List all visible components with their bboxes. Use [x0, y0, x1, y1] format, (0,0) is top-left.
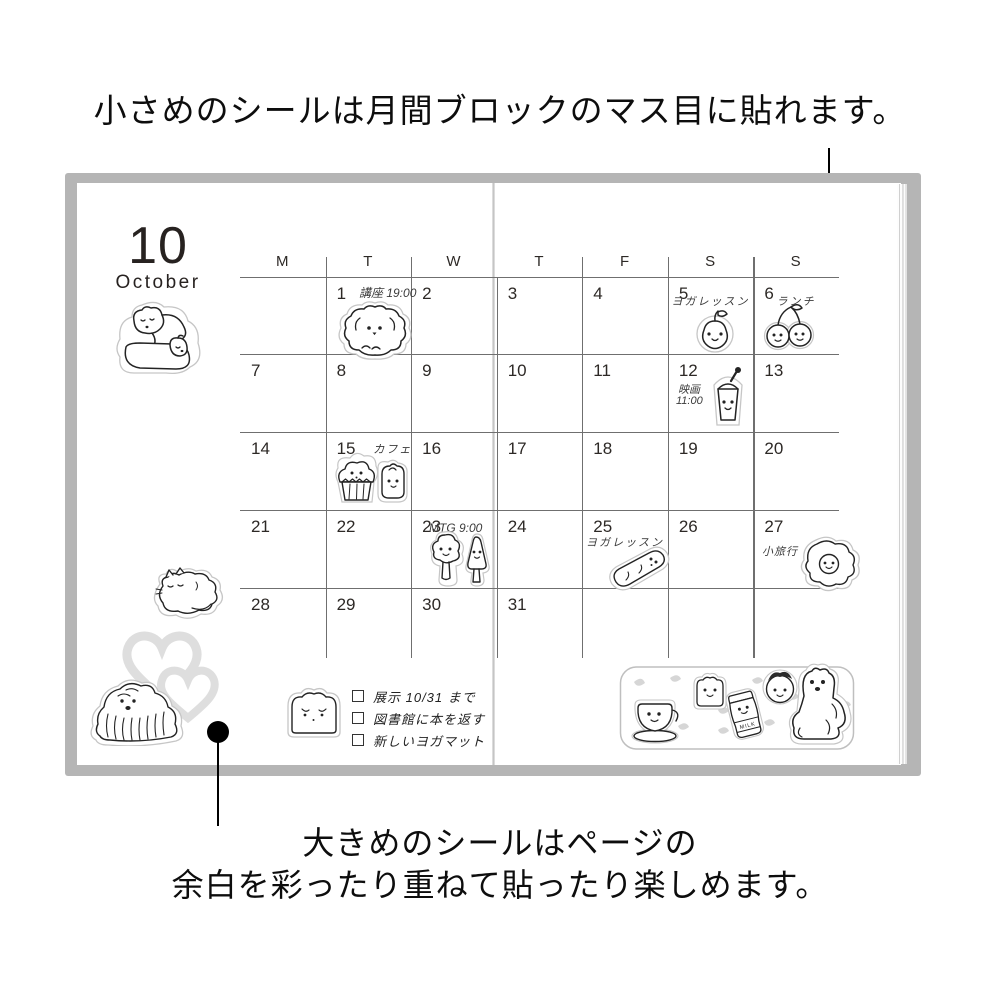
movie-drink-cup-sticker — [704, 364, 752, 428]
weekday-label: T — [497, 253, 583, 270]
day-cell: 19 — [668, 432, 754, 510]
day-cell: 29 — [326, 588, 412, 658]
two-trees-sticker — [424, 528, 494, 590]
day-cell — [240, 277, 326, 354]
checklist: 展示 10/31 まで 図書館に本を返す 新しいヨガマット — [352, 685, 485, 751]
day-cell: 17 — [497, 432, 583, 510]
checklist-item: 新しいヨガマット — [352, 729, 485, 751]
week-row: 28 29 30 31 — [240, 588, 839, 658]
day-cell: 8 — [326, 354, 412, 432]
apple-art — [703, 311, 728, 349]
day-cell: 26 — [668, 510, 754, 588]
note-oct12-line2: 11:00 — [676, 395, 703, 407]
caption-bottom-line1: 大きめのシールはページの — [0, 818, 1000, 864]
pointer-line-bottom — [217, 741, 220, 826]
checkbox-icon — [352, 690, 364, 702]
checklist-item-label: 展示 10/31 まで — [373, 687, 476, 706]
day-cell: 24 — [497, 510, 583, 588]
cupcake-and-bun-sticker — [330, 448, 412, 506]
weekday-label: W — [411, 253, 497, 270]
day-cell: 4 — [582, 277, 668, 354]
day-cell: 13 — [753, 354, 839, 432]
month-number: 10 — [116, 216, 200, 276]
checklist-item-label: 新しいヨガマット — [373, 731, 485, 750]
sticker-sheet-strip: MILK — [618, 660, 858, 752]
fried-egg-sticker — [794, 534, 862, 596]
bread-slice-sticker — [280, 682, 348, 740]
apple-sticker — [690, 306, 740, 354]
day-cell: 3 — [497, 277, 583, 354]
shaggy-dog-sticker — [88, 674, 188, 746]
poodle-dog-sticker — [336, 300, 414, 362]
caption-bottom-line2: 余白を彩ったり重ねて貼ったり楽しめます。 — [0, 860, 1000, 906]
week-row: 21 22 23 24 25 26 27 — [240, 510, 839, 588]
day-cell: 22 — [326, 510, 412, 588]
day-cell: 10 — [497, 354, 583, 432]
planner-product-photo: 小さめのシールは月間ブロックのマス目に貼れます。 10 October M T … — [0, 0, 1000, 1000]
day-cell — [582, 588, 668, 658]
bread-slice-art — [292, 693, 336, 733]
month-name: October — [96, 272, 220, 294]
weekday-label: F — [582, 253, 668, 270]
checklist-item: 図書館に本を返す — [352, 707, 485, 729]
day-cell: 2 — [411, 277, 497, 354]
day-cell: 7 — [240, 354, 326, 432]
day-cell: 30 — [411, 588, 497, 658]
weekday-label: S — [668, 253, 754, 270]
caption-top: 小さめのシールは月間ブロックのマス目に貼れます。 — [0, 84, 1000, 132]
weekday-label: S — [753, 253, 839, 270]
strawberry-sticker — [763, 670, 797, 704]
note-oct1: 講座 19:00 — [359, 284, 416, 301]
day-cell: 11 — [582, 354, 668, 432]
polar-bears-sticker — [112, 301, 204, 377]
day-cell: 21 — [240, 510, 326, 588]
lying-bread-sticker — [606, 542, 672, 596]
weekday-label: T — [326, 253, 412, 270]
poodle-art — [345, 306, 406, 355]
day-cell: 16 — [411, 432, 497, 510]
weekday-label: M — [240, 253, 326, 270]
cherries-sticker — [762, 300, 818, 352]
week-row: 1 2 3 4 5 6 — [240, 277, 839, 354]
checklist-item: 展示 10/31 まで — [352, 685, 485, 707]
checkbox-icon — [352, 712, 364, 724]
fried-egg-art — [806, 541, 854, 586]
coffee-cup-sticker — [632, 700, 678, 743]
page-edge-stack — [897, 184, 907, 764]
toast-sticker — [694, 673, 726, 709]
day-cell: 28 — [240, 588, 326, 658]
checkbox-icon — [352, 734, 364, 746]
pointer-dot-bottom — [207, 721, 229, 743]
day-cell — [753, 588, 839, 658]
weekday-header-row: M T W T F S S — [240, 253, 839, 270]
day-cell: 18 — [582, 432, 668, 510]
day-cell: 14 — [240, 432, 326, 510]
checklist-item-label: 図書館に本を返す — [373, 709, 485, 728]
day-cell: 20 — [753, 432, 839, 510]
day-cell — [668, 588, 754, 658]
bun-art — [382, 464, 404, 498]
sleeping-cat-sticker — [144, 566, 228, 626]
day-cell: 31 — [497, 588, 583, 658]
note-oct27: 小旅行 — [762, 543, 798, 559]
day-cell: 9 — [411, 354, 497, 432]
